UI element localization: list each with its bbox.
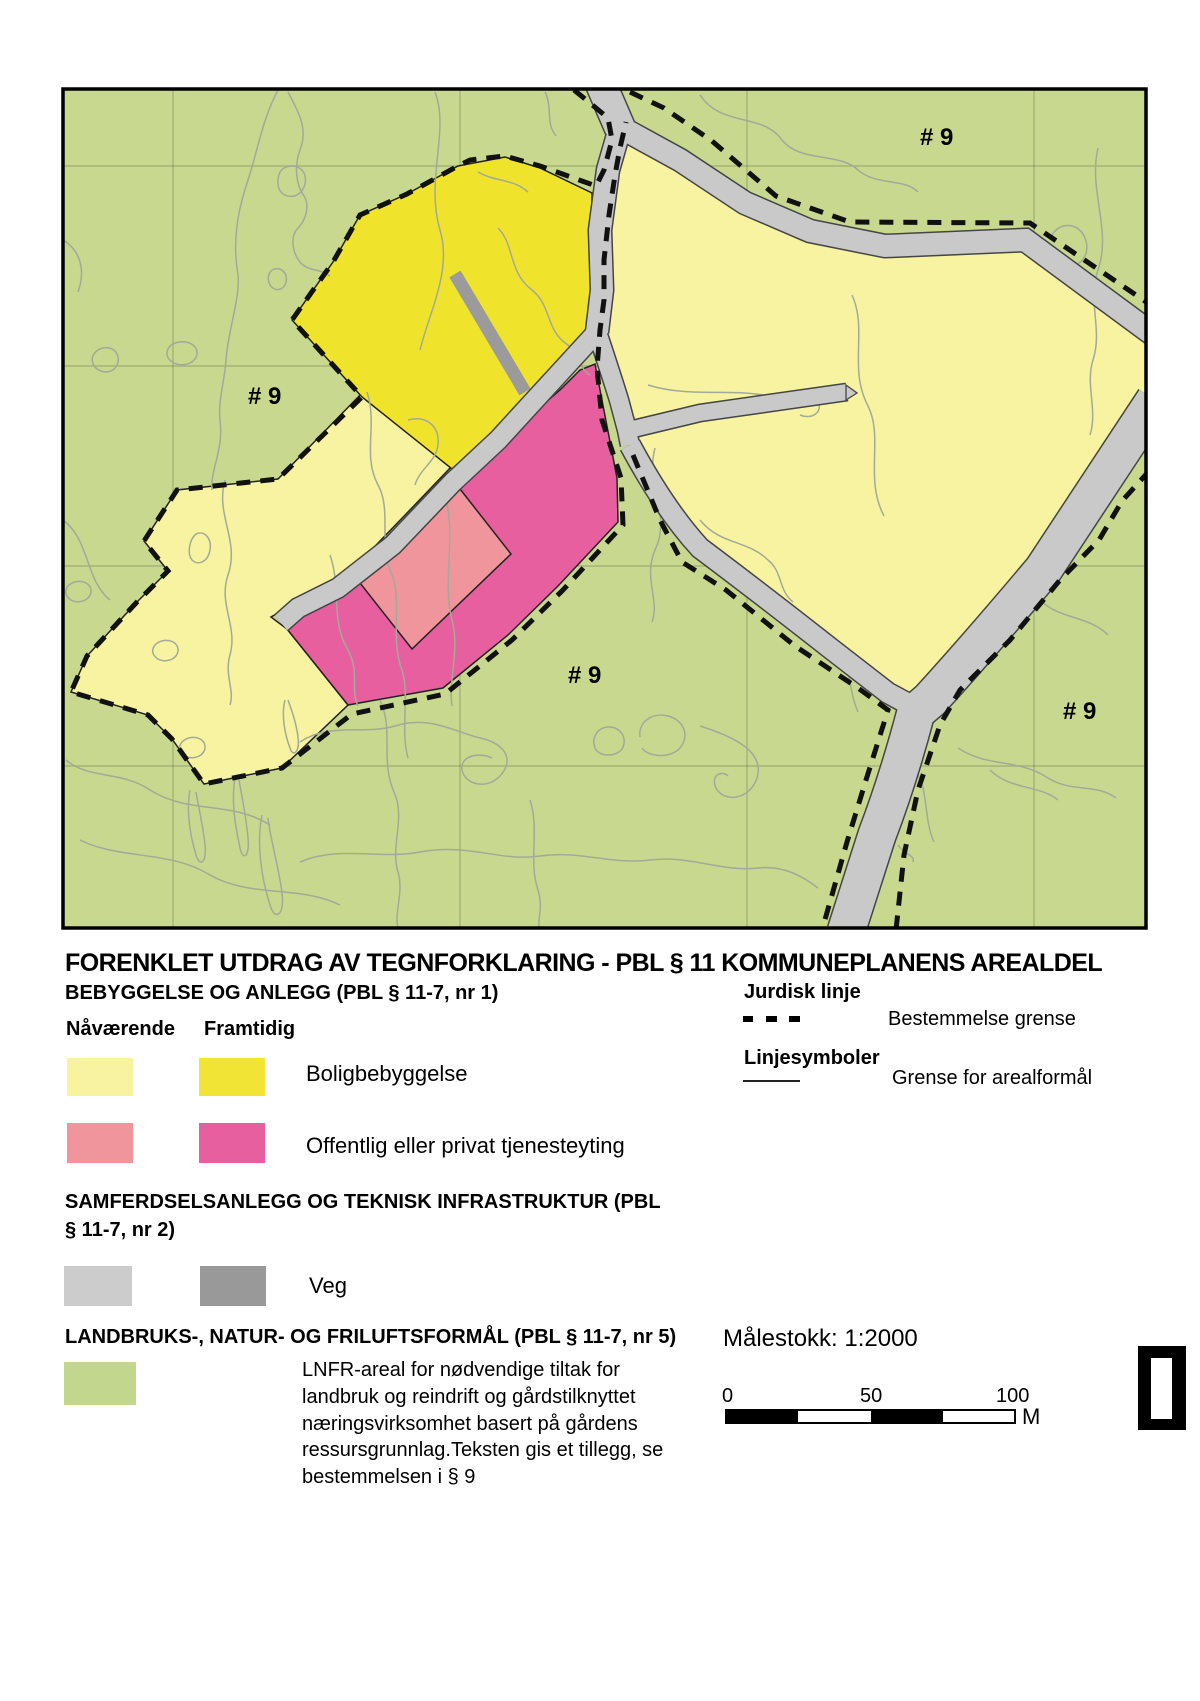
svg-text:50: 50 (860, 1385, 882, 1407)
svg-text:# 9: # 9 (920, 124, 953, 151)
svg-text:BEBYGGELSE OG ANLEGG (PBL § 11: BEBYGGELSE OG ANLEGG (PBL § 11-7, nr 1) (65, 982, 498, 1004)
svg-text:Grense for arealformål: Grense for arealformål (892, 1067, 1092, 1089)
svg-text:landbruk og reindrift og gårds: landbruk og reindrift og gårdstilknyttet (302, 1386, 636, 1408)
svg-text:# 9: # 9 (1063, 698, 1096, 725)
svg-text:0: 0 (722, 1385, 733, 1407)
svg-text:§ 11-7, nr 2): § 11-7, nr 2) (65, 1219, 175, 1241)
svg-text:Boligbebyggelse: Boligbebyggelse (306, 1061, 467, 1086)
svg-text:Nåværende: Nåværende (66, 1017, 175, 1040)
svg-text:# 9: # 9 (568, 662, 601, 689)
svg-text:Veg: Veg (309, 1273, 347, 1298)
svg-text:Offentlig eller privat tjenest: Offentlig eller privat tjenesteyting (306, 1133, 625, 1158)
svg-text:Linjesymboler: Linjesymboler (744, 1047, 880, 1069)
svg-text:M: M (1022, 1404, 1040, 1429)
svg-text:ressursgrunnlag.Teksten gis et: ressursgrunnlag.Teksten gis et tillegg, … (302, 1439, 663, 1461)
svg-text:LANDBRUKS-, NATUR- OG FRILUFTS: LANDBRUKS-, NATUR- OG FRILUFTSFORMÅL (PB… (65, 1324, 676, 1348)
svg-text:Målestokk: 1:2000: Målestokk: 1:2000 (723, 1325, 918, 1352)
svg-text:Framtidig: Framtidig (204, 1018, 295, 1040)
svg-text:LNFR-areal for nødvendige tilt: LNFR-areal for nødvendige tiltak for (302, 1359, 620, 1381)
svg-text:SAMFERDSELSANLEGG OG TEKNISK I: SAMFERDSELSANLEGG OG TEKNISK INFRASTRUKT… (65, 1191, 661, 1213)
svg-text:bestemmelsen i § 9: bestemmelsen i § 9 (302, 1466, 475, 1488)
svg-text:Jurdisk linje: Jurdisk linje (744, 981, 861, 1003)
svg-text:næringsvirksomhet basert på gå: næringsvirksomhet basert på gårdens (302, 1413, 638, 1435)
svg-text:FORENKLET UTDRAG AV TEGNFORKLA: FORENKLET UTDRAG AV TEGNFORKLARING - PBL… (65, 949, 1102, 977)
svg-text:# 9: # 9 (248, 383, 281, 410)
svg-text:Bestemmelse grense: Bestemmelse grense (888, 1008, 1076, 1030)
